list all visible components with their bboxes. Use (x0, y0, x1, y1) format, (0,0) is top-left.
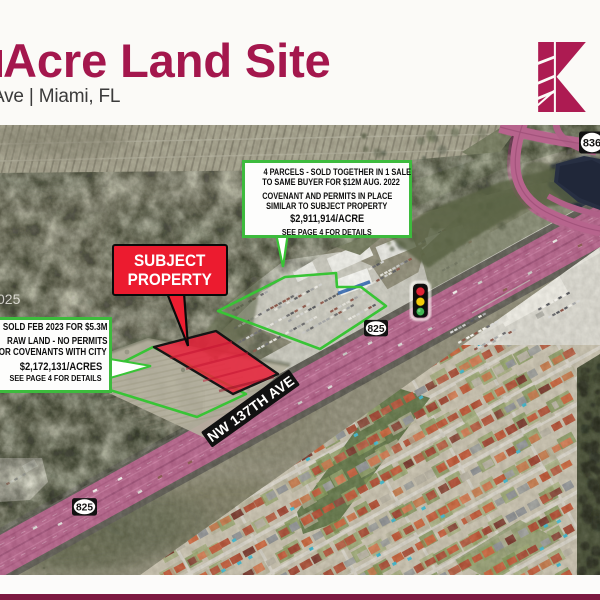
svg-text:025: 025 (0, 291, 21, 307)
svg-text:825: 825 (76, 502, 93, 513)
svg-text:825: 825 (368, 324, 385, 335)
svg-text:836: 836 (583, 137, 600, 149)
